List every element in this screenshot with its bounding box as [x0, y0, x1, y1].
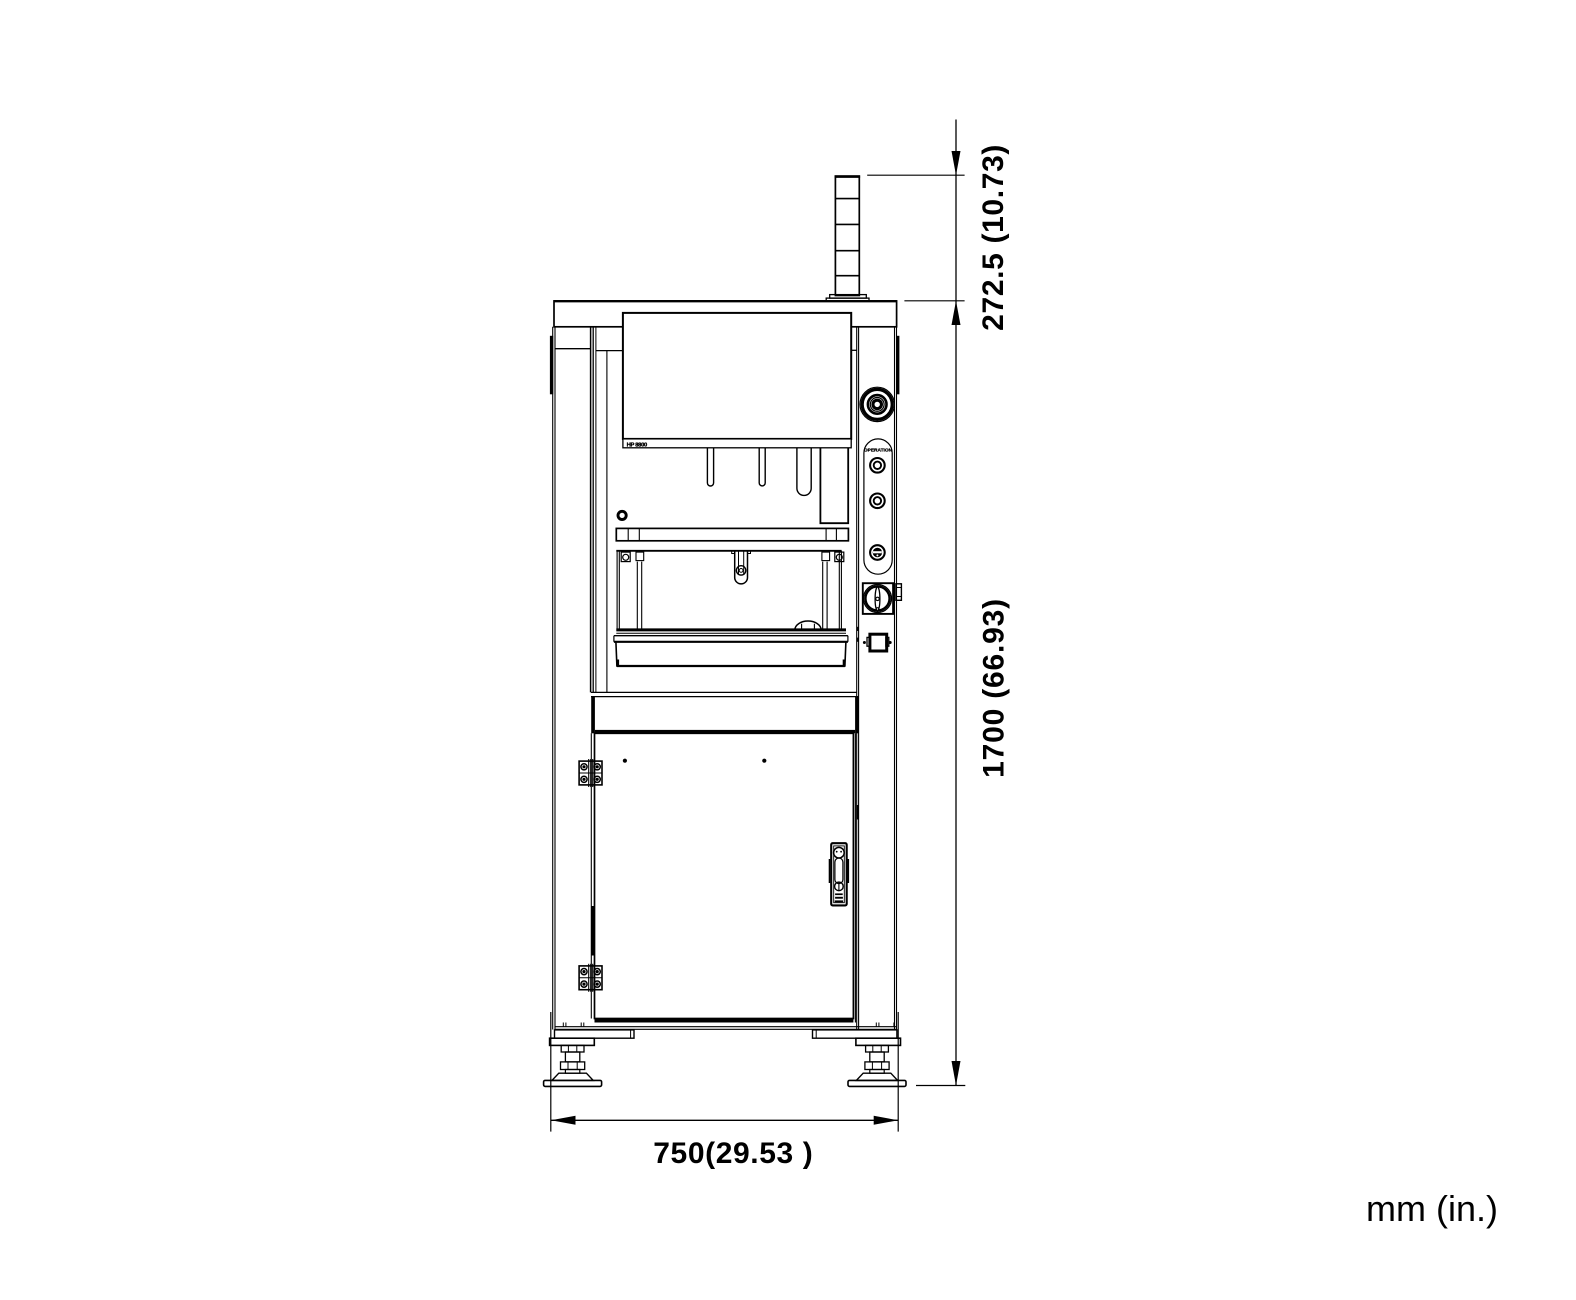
svg-text:OPERATION: OPERATION	[864, 448, 893, 454]
svg-text:mm (in.): mm (in.)	[1366, 1188, 1498, 1229]
svg-text:750(29.53 ): 750(29.53 )	[653, 1137, 813, 1170]
svg-text:1700 (66.93): 1700 (66.93)	[977, 598, 1010, 778]
svg-text:HP 8800: HP 8800	[627, 442, 647, 448]
svg-text:272.5 (10.73): 272.5 (10.73)	[977, 144, 1010, 331]
